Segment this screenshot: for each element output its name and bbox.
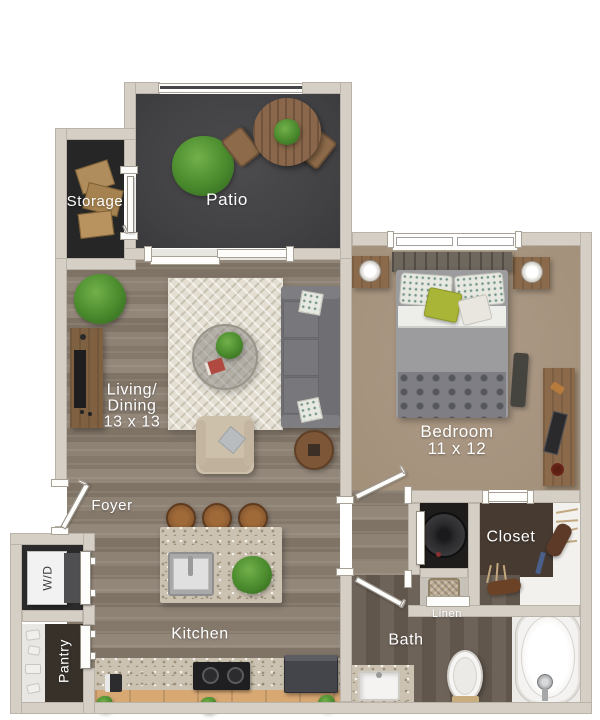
door-jamb bbox=[286, 246, 294, 262]
pantry-label: Pantry bbox=[57, 639, 72, 683]
door-jamb bbox=[404, 486, 412, 504]
patio-table-plant bbox=[274, 119, 300, 145]
washer-dryer-side bbox=[64, 553, 80, 603]
kitchen-label: Kitchen bbox=[171, 627, 229, 644]
pantry-door-hinge bbox=[90, 630, 96, 638]
island-faucet bbox=[188, 556, 193, 576]
cooktop-burner bbox=[227, 667, 244, 684]
wall-living-bedroom bbox=[340, 258, 352, 504]
island-plant bbox=[232, 556, 272, 594]
floor-plan: Storage Patio Living/ Dining 13 x 13 Bed… bbox=[0, 0, 600, 720]
wall-bedroom-top-a bbox=[352, 232, 392, 246]
door-jamb bbox=[120, 166, 138, 174]
door-jamb bbox=[336, 496, 354, 504]
wall-wd-right-c bbox=[83, 668, 95, 714]
pantry-shelf-item bbox=[27, 645, 40, 656]
pantry-shelf-item bbox=[25, 664, 41, 674]
wall-kitchen-bath bbox=[340, 573, 352, 702]
cooktop-burner bbox=[202, 667, 219, 684]
storage-label: Storage bbox=[67, 194, 124, 210]
lamp-right bbox=[521, 261, 543, 283]
bedroom-window-pane bbox=[396, 237, 453, 246]
patio-railing-bar bbox=[160, 86, 302, 89]
door-jamb bbox=[51, 479, 69, 487]
door-jamb bbox=[527, 490, 534, 504]
wall-wh-linen-divider bbox=[420, 568, 468, 578]
wall-bedroom-bottom-b bbox=[528, 490, 580, 503]
foyer-label: Foyer bbox=[91, 498, 132, 514]
coffee-maker bbox=[105, 674, 122, 692]
linen-door bbox=[426, 596, 470, 607]
wall-exterior-bottom bbox=[10, 702, 592, 714]
refrigerator bbox=[284, 655, 338, 693]
wall-storage-top bbox=[55, 128, 136, 140]
living-label-line3: 13 x 13 bbox=[104, 415, 161, 432]
coffee-table-plant bbox=[216, 332, 243, 359]
door-jamb bbox=[482, 490, 489, 504]
door-jamb bbox=[515, 231, 522, 248]
storage-door bbox=[127, 176, 134, 233]
patio-label: Patio bbox=[206, 191, 248, 209]
wall-exterior-right bbox=[580, 232, 592, 714]
water-heater bbox=[421, 512, 467, 558]
wall-wd-left bbox=[10, 533, 22, 714]
sofa-seat-cushion bbox=[283, 339, 319, 376]
sofa-pillow bbox=[298, 290, 323, 315]
storage-box bbox=[78, 210, 115, 239]
door-jamb bbox=[387, 231, 394, 248]
door-jamb bbox=[144, 246, 152, 262]
wd-label: W/D bbox=[42, 565, 55, 590]
wall-storage-left bbox=[55, 128, 67, 270]
wall-wd-right-a bbox=[83, 533, 95, 551]
door-jamb bbox=[336, 568, 354, 576]
wall-wd-pantry-divider bbox=[22, 610, 83, 622]
wall-bedroom-bottom-a bbox=[408, 490, 488, 503]
living-plant bbox=[74, 274, 126, 324]
wall-patio-right bbox=[340, 82, 352, 260]
pantry-door-hinge bbox=[90, 652, 96, 660]
hallway-floor bbox=[352, 488, 408, 575]
vanity-faucet bbox=[376, 672, 382, 678]
side-table-item bbox=[308, 444, 320, 456]
tv bbox=[74, 350, 86, 408]
soundbar-dot bbox=[80, 410, 84, 414]
bedroom-label-line2: 11 x 12 bbox=[428, 440, 487, 458]
linen-label: Linen bbox=[432, 609, 462, 621]
closet-label: Closet bbox=[487, 530, 536, 547]
console-deco bbox=[80, 334, 86, 340]
soundbar-dot bbox=[88, 412, 92, 416]
toilet-seat bbox=[453, 657, 477, 695]
tub-faucet bbox=[537, 674, 553, 690]
bed-headboard bbox=[392, 252, 512, 272]
desk-mug bbox=[551, 463, 564, 476]
lamp-left bbox=[359, 260, 381, 282]
armchair-arm bbox=[244, 420, 254, 466]
bedroom-window-pane bbox=[457, 237, 514, 246]
water-heater-closet-door bbox=[416, 511, 425, 565]
sofa-pillow bbox=[297, 397, 323, 423]
wall-whcloset-right bbox=[468, 503, 480, 610]
bath-label: Bath bbox=[388, 633, 423, 650]
door-jamb bbox=[404, 570, 412, 588]
pantry-shelf-item bbox=[25, 629, 40, 641]
tub-faucet-stem bbox=[542, 689, 548, 701]
wall-exterior-left bbox=[55, 258, 67, 486]
wd-door-hinge bbox=[90, 557, 96, 565]
patio-sliding-door-panel bbox=[217, 249, 287, 258]
water-heater-light bbox=[436, 552, 441, 557]
wd-door-hinge bbox=[90, 589, 96, 597]
armchair-arm bbox=[196, 420, 206, 466]
bed-duvet-foot bbox=[398, 372, 506, 418]
closet-sliding-door bbox=[486, 492, 530, 502]
patio-sliding-door-panel bbox=[150, 256, 220, 265]
wall-wd-right-b bbox=[83, 605, 95, 625]
door-jamb bbox=[120, 232, 138, 240]
